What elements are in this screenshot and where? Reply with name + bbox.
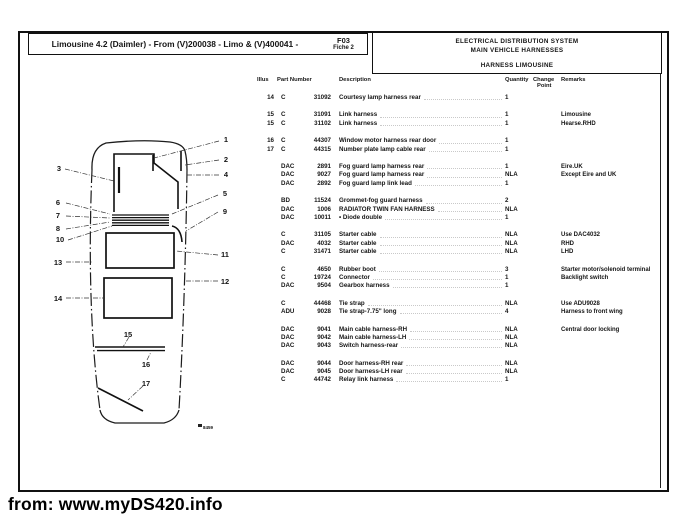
cell-part-number: 9028 [303,308,339,316]
cell-remarks: Harness to front wing [561,308,660,316]
cell-description: Rubber boot [339,266,505,274]
cell-remarks: Starter motor/solenoid terminal [561,266,660,274]
cell-part-prefix: DAC [277,342,303,350]
dotted-leader [426,203,502,204]
cell-quantity: 1 [505,111,533,119]
system-header-box: ELECTRICAL DISTRIBUTION SYSTEM MAIN VEHI… [372,32,662,59]
fiche-number: Fiche 2 [333,45,354,52]
dotted-leader [396,381,502,382]
cell-part-number: 9041 [303,326,339,334]
cell-part-prefix: DAC [277,240,303,248]
cell-description: Main cable harness-RH [339,326,505,334]
cell-description: • Diode double [339,214,505,222]
cell-illus: 14 [255,94,277,102]
dotted-leader [380,245,503,246]
table-row: DAC 2892 Fog guard lamp link lead 1 [255,180,660,188]
cell-part-number: 2892 [303,180,339,188]
catalog-page: { "page": { "title": "Limousine 4.2 (Dai… [0,0,682,528]
cell-part-number: 9043 [303,342,339,350]
cell-description: Fog guard lamp harness rear [339,163,505,171]
row-spacer [255,290,660,300]
cell-part-number: 9045 [303,368,339,376]
cell-quantity: NLA [505,326,533,334]
cell-remarks: LHD [561,248,660,256]
cell-part-number: 4650 [303,266,339,274]
table-row: ADU 9028 Tie strap-7.75" long 4 Harness … [255,308,660,316]
parts-table: Illus Part Number Description Quantity C… [255,77,660,384]
cell-description: Link harness [339,111,505,119]
cell-part-number: 44742 [303,376,339,384]
title-box: Limousine 4.2 (Daimler) - From (V)200038… [28,33,322,55]
cell-part-prefix: C [277,248,303,256]
cell-illus: 16 [255,137,277,145]
dotted-leader [427,177,502,178]
dotted-leader [439,143,502,144]
cell-part-number: 44307 [303,137,339,145]
table-row: DAC 9042 Main cable harness-LH NLA [255,334,660,342]
table-row: 14 C 31092 Courtesy lamp harness rear 1 [255,94,660,102]
cell-remarks: Limousine [561,111,660,119]
cell-part-prefix: DAC [277,206,303,214]
cell-remarks: RHD [561,240,660,248]
cell-quantity: NLA [505,342,533,350]
cell-quantity: 1 [505,163,533,171]
cell-quantity: 1 [505,214,533,222]
cell-quantity: 1 [505,274,533,282]
cell-part-prefix: C [277,300,303,308]
cell-quantity: 1 [505,94,533,102]
cell-description: Gearbox harness [339,282,505,290]
cell-part-prefix: C [277,146,303,154]
dotted-leader [368,305,502,306]
header-description: Description [339,77,505,83]
table-row: DAC 9043 Switch harness-rear NLA [255,342,660,350]
header-illus: Illus [255,77,277,83]
table-row: 16 C 44307 Window motor harness rear doo… [255,137,660,145]
dotted-leader [424,99,502,100]
row-spacer [255,154,660,164]
cell-part-number: 2891 [303,163,339,171]
cell-part-prefix: C [277,266,303,274]
cell-description: Door harness-RH rear [339,360,505,368]
cell-remarks: Backlight switch [561,274,660,282]
cell-description: Fog guard lamp harness rear [339,171,505,179]
cell-remarks: Use ADU9028 [561,300,660,308]
dotted-leader [393,287,502,288]
cell-illus: 15 [255,120,277,128]
section-header: HARNESS LIMOUSINE [481,62,554,69]
callout-7: 7 [56,211,60,220]
dotted-leader [385,219,502,220]
system-header-line1: ELECTRICAL DISTRIBUTION SYSTEM [456,38,579,45]
cell-part-number: 31092 [303,94,339,102]
cell-part-prefix: ADU [277,308,303,316]
cell-description: Starter cable [339,231,505,239]
cell-part-number: 11524 [303,197,339,205]
callout-12: 12 [221,277,229,286]
cell-description: Starter cable [339,248,505,256]
row-spacer [255,128,660,138]
dotted-leader [373,279,502,280]
callout-6: 6 [56,198,60,207]
table-row: DAC 9027 Fog guard lamp harness rear NLA… [255,171,660,179]
cell-quantity: NLA [505,206,533,214]
cell-description: Grommet-fog guard harness [339,197,505,205]
table-row: C 44742 Relay link harness 1 [255,376,660,384]
callout-4: 4 [224,170,229,179]
callout-2: 2 [224,155,228,164]
cell-description: Number plate lamp cable rear [339,146,505,154]
cell-quantity: NLA [505,171,533,179]
footer-source-watermark: from: www.myDS420.info [8,494,223,515]
cell-quantity: NLA [505,300,533,308]
dotted-leader [400,313,503,314]
cell-quantity: NLA [505,368,533,376]
cell-part-prefix: C [277,137,303,145]
table-row: C 4650 Rubber boot 3 Starter motor/solen… [255,266,660,274]
cell-part-prefix: C [277,111,303,119]
table-row: C 44468 Tie strap NLA Use ADU9028 [255,300,660,308]
cell-remarks: Except Eire and UK [561,171,660,179]
callout-14: 14 [54,294,63,303]
cell-description: Starter cable [339,240,505,248]
cell-part-prefix: DAC [277,368,303,376]
cell-description: Tie strap [339,300,505,308]
header-change-point: Change Point [533,77,561,90]
row-spacer [255,256,660,266]
callout-8: 8 [56,224,60,233]
fiche-code: F03 [337,37,350,45]
cell-part-number: 31105 [303,231,339,239]
table-header-row: Illus Part Number Description Quantity C… [255,77,660,90]
table-row: DAC 2891 Fog guard lamp harness rear 1 E… [255,163,660,171]
dotted-leader [409,339,502,340]
cell-part-number: 9042 [303,334,339,342]
table-row: DAC 9504 Gearbox harness 1 [255,282,660,290]
cell-quantity: 1 [505,120,533,128]
callout-10: 10 [56,235,64,244]
cell-quantity: NLA [505,240,533,248]
cell-illus: 15 [255,111,277,119]
cell-part-prefix: C [277,120,303,128]
dotted-leader [379,271,502,272]
cell-part-prefix: C [277,231,303,239]
table-rows: 14 C 31092 Courtesy lamp harness rear 1 … [255,94,660,385]
dotted-leader [415,185,502,186]
cell-quantity: 4 [505,308,533,316]
table-row: DAC 9044 Door harness-RH rear NLA [255,360,660,368]
dotted-leader [380,237,503,238]
cell-description: Window motor harness rear door [339,137,505,145]
cell-quantity: NLA [505,334,533,342]
cell-part-prefix: C [277,376,303,384]
cell-description: RADIATOR TWIN FAN HARNESS [339,206,505,214]
header-remarks: Remarks [561,77,660,83]
table-row: DAC 10011 • Diode double 1 [255,214,660,222]
table-row: DAC 1006 RADIATOR TWIN FAN HARNESS NLA [255,206,660,214]
cell-quantity: NLA [505,360,533,368]
table-right-rule [660,73,661,488]
cell-description: Fog guard lamp link lead [339,180,505,188]
cell-part-number: 9504 [303,282,339,290]
dotted-leader [380,253,503,254]
cell-part-number: 4032 [303,240,339,248]
cell-part-prefix: BD [277,197,303,205]
callout-3: 3 [57,164,61,173]
cell-part-number: 31091 [303,111,339,119]
page-title: Limousine 4.2 (Daimler) - From (V)200038… [52,39,299,49]
cell-part-number: 1006 [303,206,339,214]
cell-description: Relay link harness [339,376,505,384]
fiche-box: F03 Fiche 2 [320,33,368,55]
row-spacer [255,350,660,360]
row-spacer [255,102,660,112]
cell-remarks: Central door locking [561,326,660,334]
cell-part-number: 19724 [303,274,339,282]
cell-part-number: 44468 [303,300,339,308]
cell-part-prefix: DAC [277,326,303,334]
table-row: C 19724 Connector 1 Backlight switch [255,274,660,282]
cell-part-number: 9027 [303,171,339,179]
dotted-leader [380,117,502,118]
cell-part-number: 44315 [303,146,339,154]
cell-part-prefix: DAC [277,214,303,222]
cell-quantity: 1 [505,376,533,384]
cell-quantity: 1 [505,146,533,154]
table-row: DAC 9041 Main cable harness-RH NLA Centr… [255,326,660,334]
cell-part-prefix: DAC [277,163,303,171]
header-quantity: Quantity [505,77,533,83]
callout-16: 16 [142,360,150,369]
callout-numbers: 1 2 3 4 5 6 7 8 9 10 11 12 13 14 15 16 1… [54,135,229,430]
row-spacer [255,316,660,326]
callout-13: 13 [54,258,62,267]
cell-part-prefix: DAC [277,360,303,368]
row-spacer [255,188,660,198]
dotted-leader [427,168,502,169]
cell-part-prefix: DAC [277,180,303,188]
header-part-number: Part Number [277,77,303,83]
table-row: DAC 4032 Starter cable NLA RHD [255,240,660,248]
section-header-box: HARNESS LIMOUSINE [372,57,662,74]
cell-quantity: NLA [505,231,533,239]
dotted-leader [380,125,502,126]
cell-description: Connector [339,274,505,282]
cell-quantity: 2 [505,197,533,205]
cell-remarks: Eire.UK [561,163,660,171]
plate-code: 8459 [203,425,214,430]
cell-remarks: Use DAC4032 [561,231,660,239]
table-row: 15 C 31102 Link harness 1 Hearse.RHD [255,120,660,128]
cell-part-prefix: DAC [277,334,303,342]
table-row: C 31105 Starter cable NLA Use DAC4032 [255,231,660,239]
cell-part-number: 9044 [303,360,339,368]
callout-15: 15 [124,330,132,339]
callout-9: 9 [223,207,227,216]
callout-5: 5 [223,189,227,198]
callout-17: 17 [142,379,150,388]
dotted-leader [438,211,502,212]
cell-description: Courtesy lamp harness rear [339,94,505,102]
cell-illus: 17 [255,146,277,154]
cell-part-prefix: DAC [277,282,303,290]
vehicle-harness-diagram: 1 2 3 4 5 6 7 8 9 10 11 12 13 14 15 16 1… [38,128,242,438]
callout-11: 11 [221,250,229,259]
cell-part-number: 10011 [303,214,339,222]
cell-part-prefix: C [277,94,303,102]
table-row: 15 C 31091 Link harness 1 Limousine [255,111,660,119]
dotted-leader [401,347,502,348]
cell-quantity: NLA [505,248,533,256]
cell-part-number: 31471 [303,248,339,256]
table-row: BD 11524 Grommet-fog guard harness 2 [255,197,660,205]
dotted-leader [429,151,502,152]
cell-remarks: Hearse.RHD [561,120,660,128]
cell-quantity: 1 [505,180,533,188]
cell-description: Switch harness-rear [339,342,505,350]
callout-1: 1 [224,135,228,144]
cell-quantity: 3 [505,266,533,274]
row-spacer [255,222,660,232]
table-row: DAC 9045 Door harness-LH rear NLA [255,368,660,376]
cell-part-number: 31102 [303,120,339,128]
cell-description: Tie strap-7.75" long [339,308,505,316]
cell-quantity: 1 [505,282,533,290]
cell-description: Door harness-LH rear [339,368,505,376]
table-row: C 31471 Starter cable NLA LHD [255,248,660,256]
dotted-leader [406,365,502,366]
dotted-leader [410,331,502,332]
cell-description: Link harness [339,120,505,128]
cell-description: Main cable harness-LH [339,334,505,342]
table-row: 17 C 44315 Number plate lamp cable rear … [255,146,660,154]
cell-part-prefix: C [277,274,303,282]
dotted-leader [406,373,502,374]
cell-part-prefix: DAC [277,171,303,179]
system-header-line2: MAIN VEHICLE HARNESSES [471,47,564,54]
cell-quantity: 1 [505,137,533,145]
